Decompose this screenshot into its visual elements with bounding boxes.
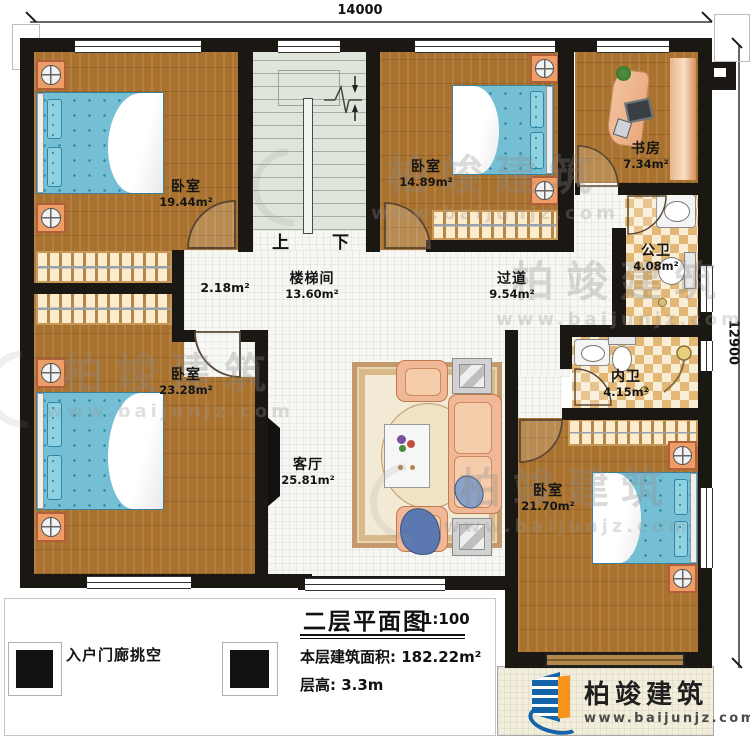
sink [574, 339, 610, 366]
floor-area-value: 182.22m² [401, 648, 481, 666]
bed-sheet [108, 393, 163, 509]
nightstand-fan-icon [673, 446, 692, 465]
stairs-up-label: 上 [272, 228, 289, 253]
stair-break-arrows [322, 72, 364, 124]
window [700, 266, 713, 312]
top-dimension-line [30, 21, 712, 23]
door-bedroom-tm [385, 203, 430, 248]
sheet-title: 二层平面图 [303, 602, 428, 636]
bed [36, 92, 164, 194]
room-label-nook: 2.18m² [190, 281, 260, 295]
wall [172, 250, 184, 342]
door-bath-public [628, 196, 666, 234]
nightstand-fan-icon [41, 208, 61, 228]
side-table-top [459, 364, 485, 388]
nightstand-fan-icon [41, 363, 61, 383]
top-dimension-label: 14000 [315, 3, 405, 18]
wall [238, 52, 253, 252]
nightstand [530, 176, 559, 205]
nightstand [668, 441, 697, 470]
nightstand [36, 358, 66, 388]
bed-headboard [37, 393, 44, 509]
brand-name: 柏竣建筑 [584, 674, 750, 711]
bed-sheet [108, 93, 163, 193]
wall [240, 330, 255, 342]
room-label-study: 书房 7.34m² [601, 142, 691, 171]
nightstand [530, 54, 559, 83]
nightstand [36, 203, 66, 233]
pillow [47, 455, 62, 500]
wardrobe [36, 292, 172, 325]
flower-decor [407, 440, 415, 448]
wall [255, 330, 268, 576]
bed-headboard [690, 473, 697, 563]
exterior-outline [714, 14, 750, 62]
room-label-living: 客厅 25.81m² [263, 458, 353, 487]
pillow [47, 402, 62, 447]
window [597, 40, 669, 53]
right-dimension-label: 12900 [726, 313, 741, 373]
wall [20, 38, 34, 588]
bed [36, 392, 164, 510]
side-table-top [459, 524, 485, 550]
stair-railing [303, 98, 313, 234]
balcony-sliding-door [545, 653, 685, 667]
brand-text: 柏竣建筑 www.baijunjz.com [584, 674, 750, 726]
logo-swoosh [526, 701, 585, 740]
nightstand-fan-icon [41, 65, 61, 85]
sheet-scale: 1:100 [422, 610, 470, 628]
brand-logo: 柏竣建筑 www.baijunjz.com [530, 666, 745, 734]
wall [562, 408, 698, 420]
room-label-bedroom-br: 卧室 21.70m² [503, 484, 593, 513]
brand-website: www.baijunjz.com [584, 711, 750, 726]
chimney-notch [714, 68, 726, 77]
coffee-table [384, 424, 430, 488]
room-label-bedroom-tl: 卧室 19.44m² [141, 180, 231, 209]
title-underline [300, 634, 465, 639]
window [87, 576, 191, 589]
bed-headboard [37, 93, 44, 193]
pillow [674, 521, 688, 557]
floor-height-line: 层高: 3.3m [300, 674, 383, 695]
wall [612, 228, 626, 328]
floor-area-label: 本层建筑面积: [300, 648, 396, 666]
bed-headboard [546, 86, 553, 174]
flower-decor [397, 435, 406, 444]
plant-icon [616, 66, 631, 81]
pillow [530, 132, 544, 169]
nightstand [36, 60, 66, 90]
nightstand-fan-icon [673, 569, 692, 588]
wall [558, 52, 574, 252]
nightstand-fan-icon [41, 517, 61, 537]
wall [34, 283, 172, 294]
pillow [674, 479, 688, 515]
bed [592, 472, 698, 564]
window [305, 578, 445, 591]
nightstand-fan-icon [535, 181, 554, 200]
porch-label: 入户门廊挑空 [66, 644, 256, 665]
floor-height-value: 3.3m [341, 676, 383, 694]
armchair-cushion [405, 368, 441, 396]
door-bedroom-br [520, 420, 562, 462]
side-table [452, 358, 492, 394]
stairs-down-label: 下 [332, 228, 349, 253]
room-label-bedroom-bl: 卧室 23.28m² [141, 368, 231, 397]
room-label-bath-public: 公卫 4.08m² [611, 244, 701, 273]
wardrobe [432, 210, 558, 240]
window [415, 40, 555, 53]
floor-drain [658, 298, 667, 307]
wall [426, 240, 558, 252]
sofa-cushion [454, 402, 492, 454]
side-table [452, 518, 492, 556]
nightstand-fan-icon [535, 59, 554, 78]
wall [618, 183, 698, 195]
floor-height-label: 层高: [300, 676, 336, 694]
sink-basin [664, 201, 690, 222]
nightstand [36, 512, 66, 542]
room-label-hallway: 过道 9.54m² [467, 272, 557, 301]
room-label-bedroom-tm: 卧室 14.89m² [381, 160, 471, 189]
wardrobe [36, 251, 172, 283]
wall [560, 337, 572, 369]
brand-logo-icon [530, 670, 578, 730]
pillow [47, 99, 62, 139]
porch-column [16, 650, 53, 688]
wall [560, 325, 698, 337]
room-label-stairwell: 楼梯间 13.60m² [267, 272, 357, 301]
window [700, 341, 713, 371]
floor-area-line: 本层建筑面积: 182.22m² [300, 646, 481, 667]
room-label-bath-private: 内卫 4.15m² [581, 370, 671, 399]
nightstand [668, 564, 697, 593]
window [700, 488, 713, 568]
wall [366, 52, 380, 252]
window [278, 40, 340, 53]
window [75, 40, 201, 53]
sink-basin [581, 345, 605, 362]
pillow [530, 91, 544, 128]
wall [172, 330, 196, 342]
bed-sheet [593, 473, 641, 563]
floor-plan-sheet: 14000 12900 [0, 0, 750, 740]
armchair [396, 360, 448, 402]
flower-decor [399, 445, 406, 452]
pillow [47, 147, 62, 187]
table-dot [398, 465, 403, 470]
hallway-pocket-floor [518, 375, 562, 420]
table-dot [410, 465, 415, 470]
